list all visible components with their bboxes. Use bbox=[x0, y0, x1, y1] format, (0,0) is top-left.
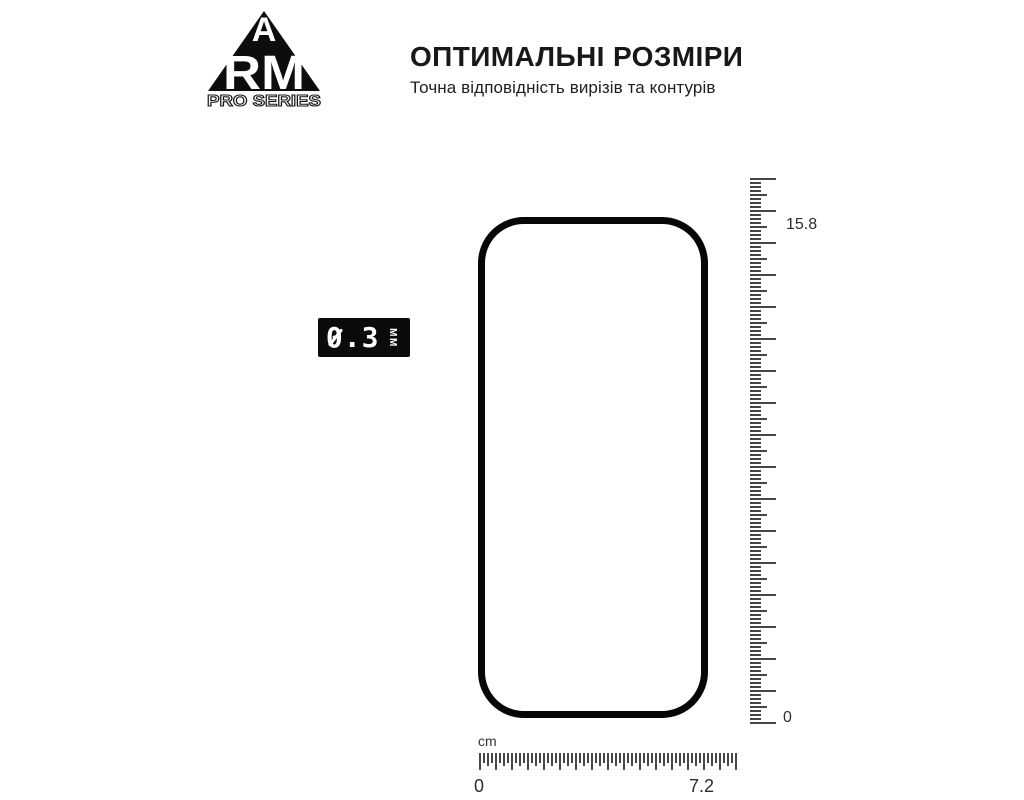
ruler-tick bbox=[750, 630, 761, 632]
ruler-tick bbox=[750, 450, 767, 452]
ruler-tick bbox=[731, 753, 733, 763]
ruler-tick bbox=[750, 722, 776, 724]
ruler-tick bbox=[750, 670, 761, 672]
ruler-tick bbox=[675, 753, 677, 763]
ruler-tick bbox=[750, 234, 761, 236]
ruler-tick bbox=[519, 753, 521, 766]
ruler-tick bbox=[495, 753, 497, 770]
ruler-tick bbox=[667, 753, 669, 763]
ruler-tick bbox=[555, 753, 557, 763]
ruler-tick bbox=[727, 753, 729, 766]
ruler-tick bbox=[750, 334, 761, 336]
ruler-tick bbox=[750, 518, 761, 520]
ruler-tick bbox=[563, 753, 565, 763]
ruler-tick bbox=[750, 214, 761, 216]
ruler-tick bbox=[735, 753, 737, 770]
ruler-tick bbox=[551, 753, 553, 766]
ruler-tick bbox=[750, 246, 761, 248]
ruler-tick bbox=[750, 662, 761, 664]
ruler-tick bbox=[679, 753, 681, 766]
ruler-tick bbox=[750, 242, 776, 244]
ruler-tick bbox=[543, 753, 545, 770]
ruler-tick bbox=[750, 458, 761, 460]
ruler-tick bbox=[750, 586, 761, 588]
ruler-tick bbox=[750, 346, 761, 348]
ruler-tick bbox=[750, 638, 761, 640]
page-title: ОПТИМАЛЬНІ РОЗМІРИ bbox=[410, 42, 770, 73]
ruler-tick bbox=[571, 753, 573, 763]
ruler-tick bbox=[750, 282, 761, 284]
ruler-tick bbox=[750, 554, 761, 556]
ruler-tick bbox=[750, 438, 761, 440]
ruler-tick bbox=[547, 753, 549, 763]
ruler-tick bbox=[750, 182, 761, 184]
ruler-tick bbox=[607, 753, 609, 770]
ruler-tick bbox=[750, 422, 761, 424]
ruler-tick bbox=[750, 410, 761, 412]
ruler-tick bbox=[750, 298, 761, 300]
ruler-tick bbox=[750, 618, 761, 620]
ruler-tick bbox=[750, 226, 767, 228]
ruler-tick bbox=[539, 753, 541, 763]
ruler-tick bbox=[750, 190, 761, 192]
ruler-tick bbox=[750, 590, 761, 592]
ruler-tick bbox=[711, 753, 713, 766]
ruler-tick bbox=[651, 753, 653, 763]
ruler-tick bbox=[750, 342, 761, 344]
ruler-tick bbox=[750, 302, 761, 304]
ruler-tick bbox=[750, 230, 761, 232]
ruler-tick bbox=[499, 753, 501, 763]
ruler-tick bbox=[750, 374, 761, 376]
header: ОПТИМАЛЬНІ РОЗМІРИ Точна відповідність в… bbox=[410, 42, 770, 98]
ruler-tick bbox=[750, 606, 761, 608]
ruler-tick bbox=[750, 558, 761, 560]
ruler-tick bbox=[750, 426, 761, 428]
ruler-tick bbox=[750, 514, 767, 516]
ruler-tick bbox=[750, 278, 761, 280]
ruler-tick bbox=[750, 262, 761, 264]
ruler-tick bbox=[750, 402, 776, 404]
ruler-tick bbox=[750, 694, 761, 696]
ruler-tick bbox=[750, 538, 761, 540]
ruler-tick bbox=[750, 294, 761, 296]
ruler-tick bbox=[643, 753, 645, 763]
ruler-tick bbox=[750, 202, 761, 204]
ruler-tick bbox=[750, 266, 761, 268]
ruler-tick bbox=[750, 482, 767, 484]
ruler-tick bbox=[750, 626, 776, 628]
ruler-tick bbox=[750, 322, 767, 324]
ruler-tick bbox=[567, 753, 569, 766]
ruler-tick bbox=[750, 286, 761, 288]
ruler-tick bbox=[635, 753, 637, 763]
ruler-tick bbox=[750, 414, 761, 416]
ruler-tick bbox=[595, 753, 597, 763]
ruler-tick bbox=[750, 610, 767, 612]
ruler-tick bbox=[750, 718, 761, 720]
ruler-tick bbox=[723, 753, 725, 763]
ruler-tick bbox=[531, 753, 533, 763]
ruler-tick bbox=[750, 486, 761, 488]
ruler-tick bbox=[750, 362, 761, 364]
ruler-tick bbox=[750, 358, 761, 360]
horizontal-ruler-min-label: 0 bbox=[474, 777, 484, 795]
ruler-tick bbox=[750, 390, 761, 392]
ruler-tick bbox=[750, 398, 761, 400]
vertical-ruler-max-label: 15.8 bbox=[786, 217, 817, 233]
thickness-badge: 0.3 MM bbox=[318, 318, 410, 357]
ruler-tick bbox=[750, 490, 761, 492]
ruler-tick bbox=[750, 382, 761, 384]
ruler-tick bbox=[583, 753, 585, 766]
ruler-tick bbox=[483, 753, 485, 763]
ruler-tick bbox=[750, 562, 776, 564]
arm-pro-series-logo: A RM PRO SERIES bbox=[203, 6, 325, 118]
ruler-tick bbox=[750, 578, 767, 580]
ruler-tick bbox=[587, 753, 589, 763]
ruler-tick bbox=[750, 622, 761, 624]
ruler-tick bbox=[750, 366, 761, 368]
ruler-tick bbox=[750, 598, 761, 600]
thickness-unit: MM bbox=[387, 328, 397, 348]
ruler-tick bbox=[750, 270, 761, 272]
ruler-tick bbox=[750, 210, 776, 212]
ruler-tick bbox=[647, 753, 649, 766]
ruler-tick bbox=[750, 354, 767, 356]
ruler-tick bbox=[750, 710, 761, 712]
ruler-tick bbox=[719, 753, 721, 770]
ruler-tick bbox=[659, 753, 661, 763]
ruler-tick bbox=[750, 330, 761, 332]
horizontal-ruler bbox=[479, 753, 739, 773]
ruler-tick bbox=[639, 753, 641, 770]
ruler-tick bbox=[750, 702, 761, 704]
ruler-tick bbox=[611, 753, 613, 763]
ruler-tick bbox=[663, 753, 665, 766]
ruler-tick bbox=[511, 753, 513, 770]
ruler-tick bbox=[750, 642, 767, 644]
ruler-tick bbox=[750, 470, 761, 472]
ruler-tick bbox=[750, 530, 776, 532]
ruler-tick bbox=[750, 290, 767, 292]
ruler-tick bbox=[750, 502, 761, 504]
ruler-tick bbox=[750, 314, 761, 316]
ruler-tick bbox=[750, 542, 761, 544]
logo-letter-a: A bbox=[252, 11, 277, 49]
ruler-tick bbox=[523, 753, 525, 763]
ruler-tick bbox=[507, 753, 509, 763]
logo-series-label: PRO SERIES bbox=[207, 93, 321, 110]
ruler-tick bbox=[695, 753, 697, 766]
ruler-tick bbox=[750, 506, 761, 508]
ruler-tick bbox=[750, 534, 761, 536]
ruler-tick bbox=[619, 753, 621, 763]
ruler-tick bbox=[750, 250, 761, 252]
ruler-tick bbox=[750, 378, 761, 380]
horizontal-ruler-max-label: 7.2 bbox=[689, 777, 714, 795]
vertical-ruler bbox=[750, 178, 780, 726]
ruler-tick bbox=[750, 654, 761, 656]
ruler-tick bbox=[750, 454, 761, 456]
ruler-tick bbox=[750, 310, 761, 312]
ruler-tick bbox=[575, 753, 577, 770]
ruler-tick bbox=[750, 462, 761, 464]
ruler-tick bbox=[615, 753, 617, 766]
ruler-tick bbox=[750, 206, 761, 208]
ruler-tick bbox=[750, 658, 776, 660]
ruler-tick bbox=[750, 698, 761, 700]
ruler-tick bbox=[750, 466, 776, 468]
ruler-tick bbox=[750, 478, 761, 480]
ruler-tick bbox=[750, 446, 761, 448]
ruler-tick bbox=[559, 753, 561, 770]
ruler-tick bbox=[750, 510, 761, 512]
ruler-tick bbox=[750, 370, 776, 372]
ruler-tick bbox=[750, 222, 761, 224]
ruler-tick bbox=[750, 350, 761, 352]
ruler-tick bbox=[535, 753, 537, 766]
ruler-tick bbox=[715, 753, 717, 763]
ruler-tick bbox=[515, 753, 517, 763]
ruler-tick bbox=[691, 753, 693, 763]
ruler-tick bbox=[750, 418, 767, 420]
ruler-tick bbox=[750, 682, 761, 684]
ruler-tick bbox=[750, 522, 761, 524]
ruler-tick bbox=[750, 254, 761, 256]
ruler-tick bbox=[750, 566, 761, 568]
ruler-tick bbox=[750, 526, 761, 528]
ruler-tick bbox=[623, 753, 625, 770]
ruler-tick bbox=[750, 238, 761, 240]
ruler-tick bbox=[579, 753, 581, 763]
vertical-ruler-min-label: 0 bbox=[783, 710, 792, 726]
ruler-tick bbox=[750, 546, 767, 548]
ruler-tick bbox=[750, 406, 761, 408]
ruler-tick bbox=[750, 338, 776, 340]
ruler-tick bbox=[591, 753, 593, 770]
ruler-tick bbox=[750, 550, 761, 552]
ruler-tick bbox=[750, 570, 761, 572]
ruler-tick bbox=[750, 678, 761, 680]
ruler-tick bbox=[750, 666, 761, 668]
ruler-tick bbox=[750, 646, 761, 648]
ruler-tick bbox=[750, 574, 761, 576]
ruler-tick bbox=[527, 753, 529, 770]
ruler-tick bbox=[750, 674, 767, 676]
ruler-tick bbox=[603, 753, 605, 763]
ruler-tick bbox=[487, 753, 489, 766]
ruler-tick bbox=[750, 594, 776, 596]
ruler-tick bbox=[750, 686, 761, 688]
ruler-tick bbox=[750, 650, 761, 652]
ruler-tick bbox=[750, 394, 761, 396]
ruler-tick bbox=[750, 318, 761, 320]
ruler-tick bbox=[750, 306, 776, 308]
ruler-tick bbox=[750, 474, 761, 476]
ruler-tick bbox=[750, 326, 761, 328]
ruler-tick bbox=[707, 753, 709, 763]
ruler-tick bbox=[750, 442, 761, 444]
ruler-tick bbox=[750, 194, 767, 196]
ruler-tick bbox=[631, 753, 633, 766]
ruler-tick bbox=[750, 178, 776, 180]
ruler-tick bbox=[750, 634, 761, 636]
page-subtitle: Точна відповідність вирізів та контурів bbox=[410, 78, 770, 98]
ruler-tick bbox=[687, 753, 689, 770]
ruler-tick bbox=[683, 753, 685, 763]
ruler-tick bbox=[750, 258, 767, 260]
ruler-tick bbox=[750, 386, 767, 388]
ruler-tick bbox=[750, 274, 776, 276]
ruler-tick bbox=[699, 753, 701, 763]
ruler-tick bbox=[750, 434, 776, 436]
ruler-tick bbox=[750, 706, 767, 708]
ruler-tick bbox=[750, 582, 761, 584]
ruler-tick bbox=[750, 186, 761, 188]
ruler-tick bbox=[750, 602, 761, 604]
ruler-tick bbox=[599, 753, 601, 766]
ruler-tick bbox=[750, 430, 761, 432]
ruler-tick bbox=[750, 714, 761, 716]
ruler-tick bbox=[750, 494, 761, 496]
thickness-value-wrap: 0.3 bbox=[326, 324, 380, 352]
ruler-tick bbox=[479, 753, 481, 770]
ruler-tick bbox=[750, 198, 761, 200]
ruler-tick bbox=[703, 753, 705, 770]
ruler-tick bbox=[491, 753, 493, 763]
ruler-tick bbox=[627, 753, 629, 763]
ruler-tick bbox=[655, 753, 657, 770]
ruler-tick bbox=[671, 753, 673, 770]
ruler-tick bbox=[750, 498, 776, 500]
ruler-tick bbox=[750, 218, 761, 220]
ruler-tick bbox=[750, 690, 776, 692]
ruler-tick bbox=[503, 753, 505, 766]
screen-protector-outline bbox=[478, 217, 708, 718]
horizontal-ruler-unit-label: cm bbox=[478, 734, 497, 748]
ruler-tick bbox=[750, 614, 761, 616]
